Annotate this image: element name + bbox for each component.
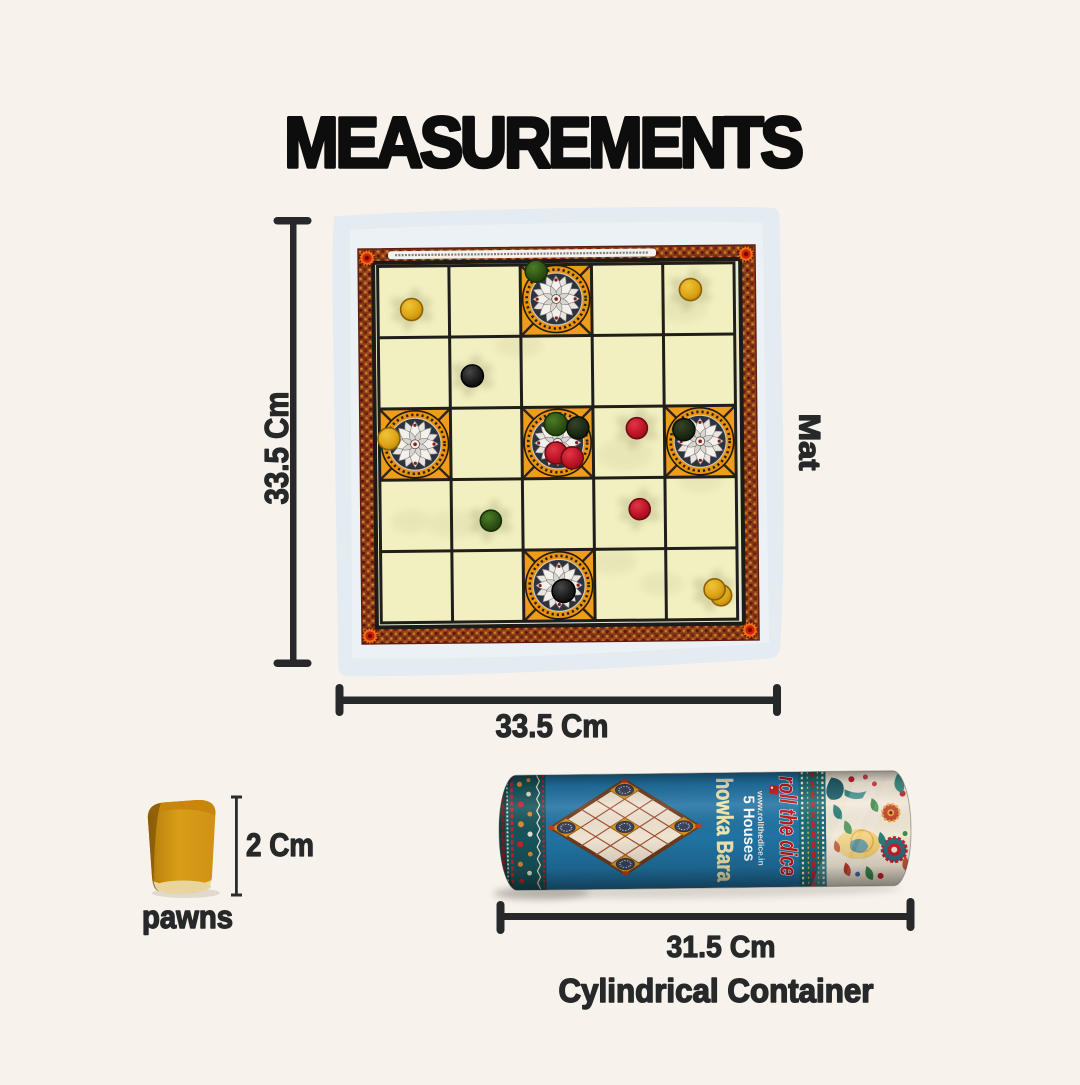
svg-text:33.5 Cm: 33.5 Cm [258, 392, 295, 505]
svg-text:MEASUREMENTS: MEASUREMENTS [284, 104, 801, 183]
svg-text:Cylindrical Container: Cylindrical Container [559, 972, 874, 1009]
svg-text:Mat: Mat [793, 414, 826, 471]
svg-text:33.5 Cm: 33.5 Cm [496, 708, 609, 744]
svg-text:2 Cm: 2 Cm [246, 827, 314, 863]
svg-text:pawns: pawns [142, 899, 233, 935]
svg-text:31.5 Cm: 31.5 Cm [667, 929, 776, 964]
